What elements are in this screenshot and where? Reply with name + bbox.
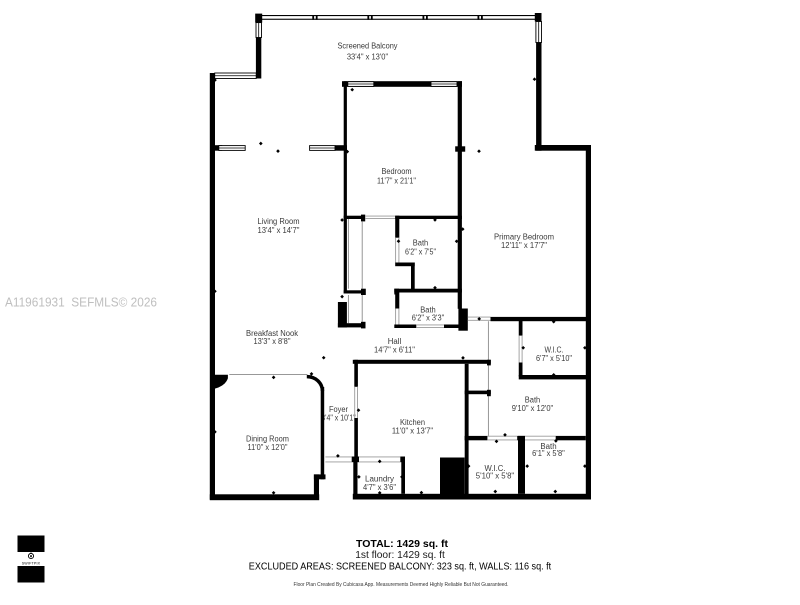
svg-text:13'3" x 8'8": 13'3" x 8'8" xyxy=(254,337,291,346)
svg-text:6'7" x 5'10": 6'7" x 5'10" xyxy=(536,354,572,363)
svg-text:1st floor: 1429 sq. ft: 1st floor: 1429 sq. ft xyxy=(355,550,445,561)
svg-text:6'1" x 5'8": 6'1" x 5'8" xyxy=(532,449,565,458)
svg-text:4'7" x 3'6": 4'7" x 3'6" xyxy=(363,483,396,492)
svg-text:33'4" x 13'0": 33'4" x 13'0" xyxy=(347,53,389,62)
svg-text:11'0" x 13'7": 11'0" x 13'7" xyxy=(392,427,433,436)
svg-text:14'7" x 6'11": 14'7" x 6'11" xyxy=(374,345,415,354)
svg-text:Bath: Bath xyxy=(413,239,429,248)
svg-text:3'4" x 10'1": 3'4" x 10'1" xyxy=(321,413,356,422)
svg-text:11'0" x 12'0": 11'0" x 12'0" xyxy=(248,443,288,452)
svg-text:TOTAL: 1429 sq. ft: TOTAL: 1429 sq. ft xyxy=(356,538,449,550)
svg-text:6'2" x 3'3": 6'2" x 3'3" xyxy=(412,314,445,323)
svg-text:Screened Balcony: Screened Balcony xyxy=(338,42,398,51)
svg-text:Floor Plan Created By Cubicasa: Floor Plan Created By Cubicasa App. Meas… xyxy=(294,582,509,588)
svg-text:13'4" x 14'7": 13'4" x 14'7" xyxy=(258,226,300,235)
svg-text:12'11" x 17'7": 12'11" x 17'7" xyxy=(501,241,547,250)
svg-text:A11961931 SEFMLS© 2026: A11961931 SEFMLS© 2026 xyxy=(5,295,157,310)
svg-text:11'7" x 21'1": 11'7" x 21'1" xyxy=(377,177,416,186)
svg-text:EXCLUDED AREAS: SCREENED BALCO: EXCLUDED AREAS: SCREENED BALCONY: 323 sq… xyxy=(249,562,552,573)
svg-text:6'2" x 7'5": 6'2" x 7'5" xyxy=(405,248,436,257)
svg-text:9'10" x 12'0": 9'10" x 12'0" xyxy=(512,404,554,413)
svg-text:5'10" x 5'8": 5'10" x 5'8" xyxy=(476,472,515,481)
svg-text:SWIFTPIX: SWIFTPIX xyxy=(22,562,41,566)
svg-text:Living Room: Living Room xyxy=(258,217,300,226)
svg-text:Bedroom: Bedroom xyxy=(382,167,412,176)
